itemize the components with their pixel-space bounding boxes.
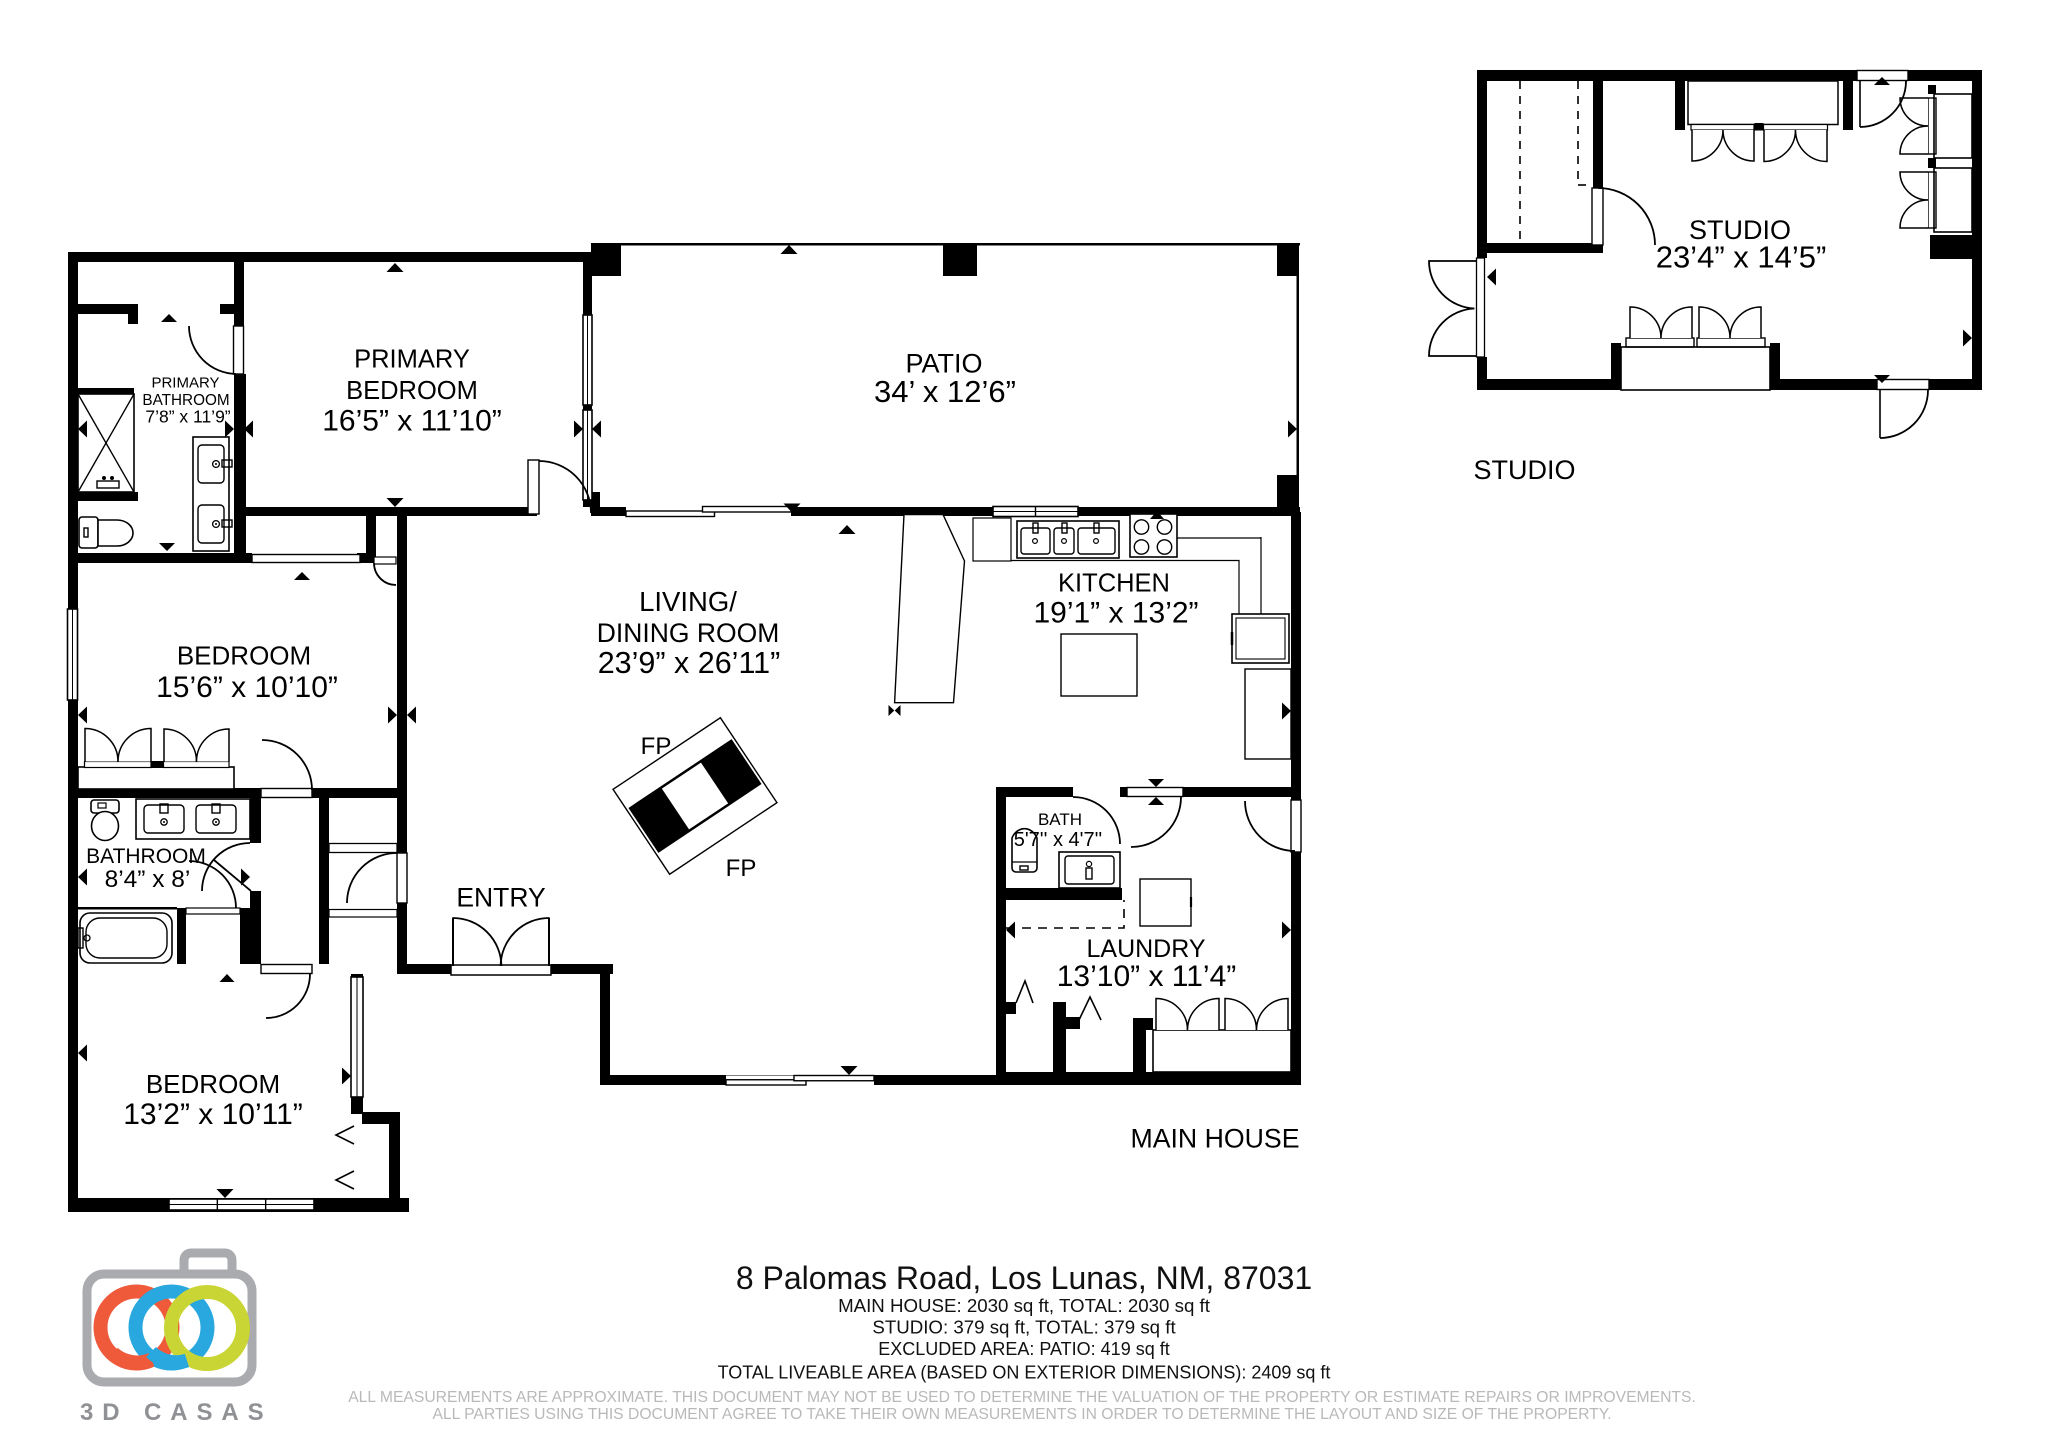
svg-text:BATHROOM: BATHROOM (86, 845, 206, 868)
svg-text:19’1” x 13’2”: 19’1” x 13’2” (1033, 597, 1198, 630)
svg-text:13’2” x 10’11”: 13’2” x 10’11” (123, 1098, 303, 1131)
svg-text:BEDROOM: BEDROOM (146, 1069, 280, 1099)
svg-text:MAIN HOUSE: 2030 sq ft, TOTAL:: MAIN HOUSE: 2030 sq ft, TOTAL: 2030 sq f… (838, 1295, 1211, 1316)
svg-text:KITCHEN: KITCHEN (1058, 570, 1170, 598)
svg-text:23’9” x 26’11”: 23’9” x 26’11” (598, 646, 781, 680)
svg-text:34’ x 12’6”: 34’ x 12’6” (874, 374, 1016, 409)
svg-text:BEDROOM: BEDROOM (177, 641, 311, 671)
svg-text:STUDIO: STUDIO (1473, 455, 1575, 485)
svg-text:ALL MEASUREMENTS ARE APPROXIMA: ALL MEASUREMENTS ARE APPROXIMATE. THIS D… (348, 1389, 1696, 1406)
svg-text:DINING ROOM: DINING ROOM (597, 618, 780, 648)
svg-text:23’4” x 14’5”: 23’4” x 14’5” (1656, 240, 1827, 275)
svg-text:5'7'' x 4'7'': 5'7'' x 4'7'' (1014, 829, 1103, 851)
svg-text:3D CASAS: 3D CASAS (80, 1399, 273, 1426)
svg-text:MAIN HOUSE: MAIN HOUSE (1130, 1124, 1299, 1154)
svg-text:ALL PARTIES USING THIS DOCUMEN: ALL PARTIES USING THIS DOCUMENT AGREE TO… (432, 1406, 1611, 1423)
svg-text:FP: FP (641, 733, 672, 760)
svg-text:7’8” x 11’9”: 7’8” x 11’9” (145, 407, 230, 427)
svg-text:PRIMARY: PRIMARY (354, 346, 470, 374)
svg-text:13’10” x 11’4”: 13’10” x 11’4” (1057, 960, 1237, 993)
svg-text:PRIMARY: PRIMARY (151, 375, 219, 392)
svg-text:16’5” x 11’10”: 16’5” x 11’10” (322, 405, 502, 438)
svg-text:BATH: BATH (1038, 810, 1082, 829)
svg-text:8 Palomas Road, Los Lunas, NM,: 8 Palomas Road, Los Lunas, NM, 87031 (736, 1260, 1312, 1296)
svg-text:LIVING/: LIVING/ (639, 586, 737, 617)
svg-text:EXCLUDED AREA: PATIO: 419 sq f: EXCLUDED AREA: PATIO: 419 sq ft (878, 1339, 1169, 1359)
svg-text:STUDIO: 379 sq ft, TOTAL: 379: STUDIO: 379 sq ft, TOTAL: 379 sq ft (872, 1317, 1176, 1338)
svg-text:ENTRY: ENTRY (456, 883, 546, 913)
svg-text:FP: FP (726, 855, 757, 882)
svg-text:15’6” x 10’10”: 15’6” x 10’10” (156, 671, 338, 704)
svg-text:LAUNDRY: LAUNDRY (1086, 935, 1205, 963)
svg-text:8’4” x 8’: 8’4” x 8’ (105, 866, 191, 893)
svg-text:BEDROOM: BEDROOM (346, 377, 478, 405)
svg-text:TOTAL LIVEABLE AREA (BASED ON: TOTAL LIVEABLE AREA (BASED ON EXTERIOR D… (718, 1363, 1331, 1383)
